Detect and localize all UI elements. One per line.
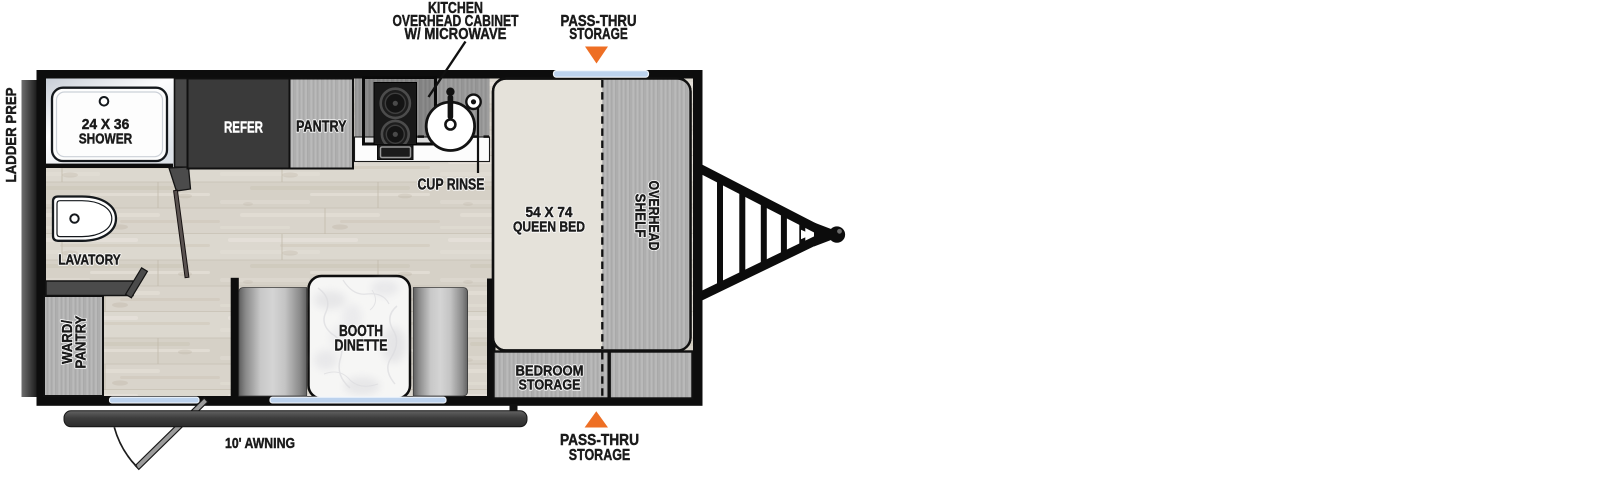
svg-text:10' AWNING: 10' AWNING xyxy=(225,435,295,452)
svg-text:CUP RINSE: CUP RINSE xyxy=(418,176,485,193)
svg-text:REFER: REFER xyxy=(224,120,263,137)
svg-text:LAVATORY: LAVATORY xyxy=(58,252,121,269)
svg-text:PANTRY: PANTRY xyxy=(296,119,347,136)
svg-text:STORAGE: STORAGE xyxy=(519,378,581,394)
svg-text:DINETTE: DINETTE xyxy=(335,337,388,354)
svg-text:SHOWER: SHOWER xyxy=(79,132,133,148)
svg-text:LADDER PREP: LADDER PREP xyxy=(3,88,20,183)
svg-text:WARD/PANTRY: WARD/PANTRY xyxy=(60,315,90,368)
svg-text:QUEEN BED: QUEEN BED xyxy=(513,219,585,235)
svg-text:W/ MICROWAVE: W/ MICROWAVE xyxy=(405,26,507,43)
svg-text:STORAGE: STORAGE xyxy=(569,447,631,464)
svg-text:STORAGE: STORAGE xyxy=(569,26,628,43)
